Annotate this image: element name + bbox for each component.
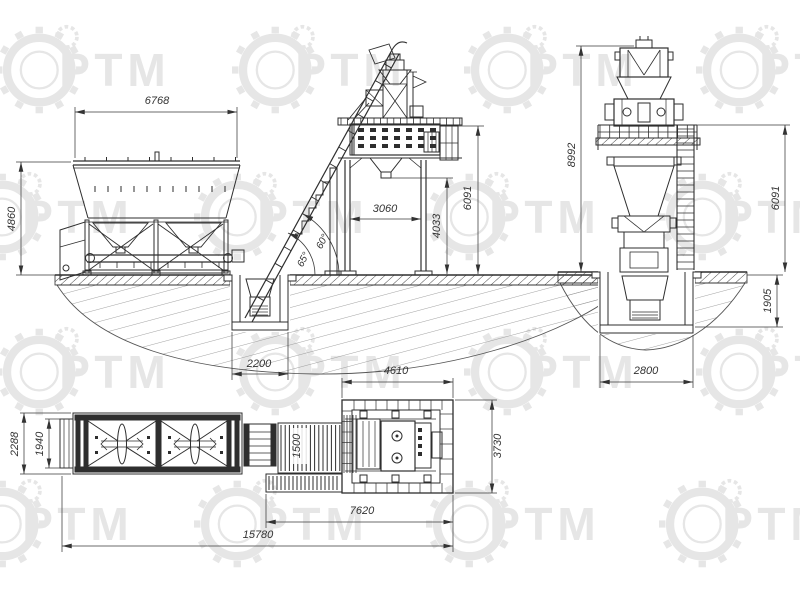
- dim-bins-height: 4860: [6, 206, 18, 231]
- aggregate-bins-side: [60, 152, 244, 280]
- drawing-sheet: РТМ РТМ РТМ: [0, 0, 800, 600]
- plant-drawing: against>: [0, 0, 800, 600]
- skip-pit-side: against>: [224, 275, 296, 332]
- dim-platform-height-end: 6091: [770, 186, 782, 210]
- dim-conveyor-length: 7620: [350, 505, 375, 517]
- skip-pit-end: [592, 272, 701, 334]
- dim-platform-height-side: 6091: [462, 186, 474, 210]
- dim-bins-length: 6768: [145, 95, 170, 107]
- dim-total-height: 8992: [566, 143, 578, 167]
- dim-total-length: 15780: [243, 529, 274, 541]
- skip-angle-arcs: [288, 214, 339, 275]
- skip-cart-plan: [244, 424, 276, 466]
- mixer-tower-end: [596, 36, 700, 272]
- dim-legs-span: 3060: [373, 203, 398, 215]
- dim-mixer-frame-length: 4610: [384, 365, 409, 377]
- dim-discharge-height: 4033: [431, 213, 443, 238]
- excavation-side: [57, 285, 628, 374]
- dim-pit-depth: 1905: [762, 288, 774, 313]
- dim-skip-belt-width: 1500: [291, 433, 303, 458]
- mixer-frame-plan: [342, 400, 453, 493]
- mixer-tower-side: [338, 44, 462, 275]
- dim-bins-inner-width: 1940: [34, 431, 46, 456]
- dim-skip-angle-upper: 60°: [314, 233, 331, 252]
- dim-mixer-frame-width: 3730: [492, 433, 504, 458]
- dim-pit-width: 2800: [633, 365, 659, 377]
- ground-side: [55, 275, 630, 285]
- charging-conveyor-plan: [278, 423, 342, 473]
- dim-skip-pit-width: 2200: [246, 358, 272, 370]
- discharge-belt-plan: [266, 474, 342, 492]
- aggregate-bins-plan: [60, 413, 242, 474]
- dim-bins-width: 2288: [9, 431, 21, 457]
